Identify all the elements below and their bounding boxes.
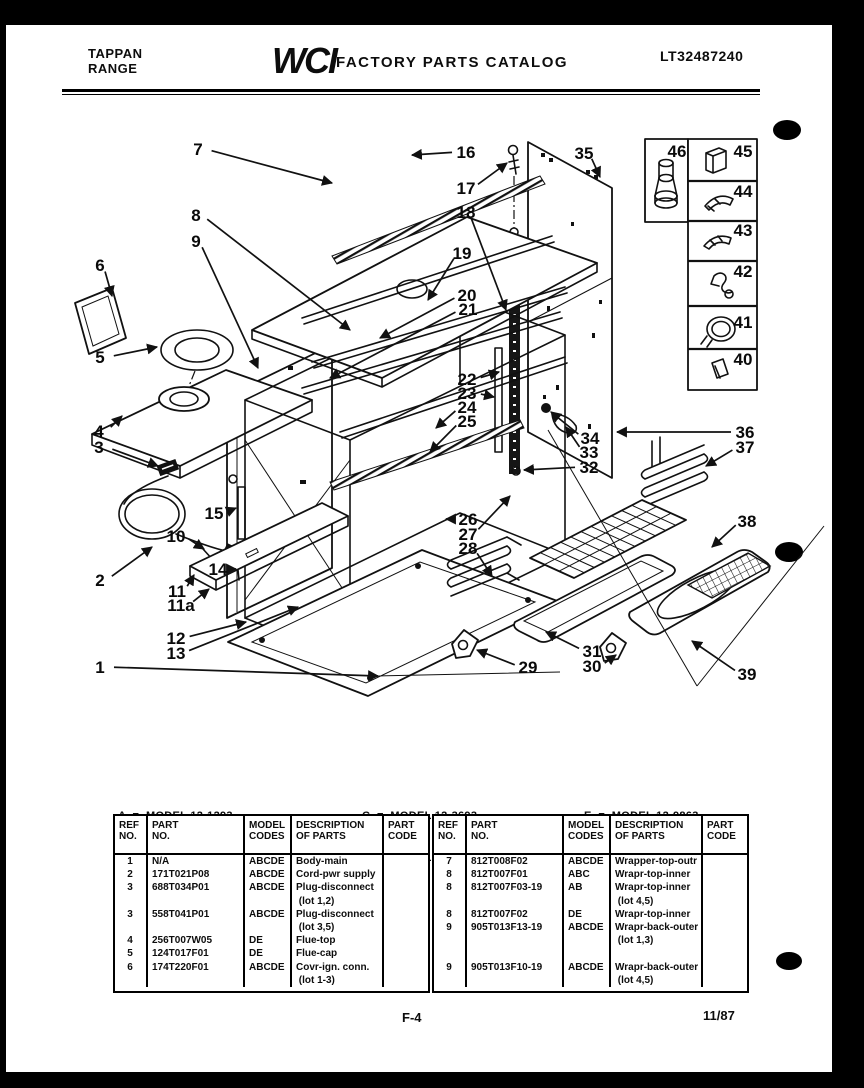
callout-21: 21 bbox=[459, 300, 478, 319]
callout-14: 14 bbox=[209, 560, 228, 579]
callout-8: 8 bbox=[191, 206, 200, 225]
part-number-cell: 256T007W05 bbox=[148, 934, 245, 947]
part-code-cell bbox=[703, 855, 747, 868]
callout-13: 13 bbox=[167, 644, 186, 663]
leader-line-17 bbox=[478, 163, 507, 184]
flue-cap-ring bbox=[161, 330, 233, 370]
ref-cell: 7 bbox=[434, 855, 467, 868]
description-cell: Flue-top bbox=[292, 934, 384, 947]
callout-11a: 11a bbox=[167, 596, 195, 615]
catalog-page: TAPPAN RANGE WCI FACTORY PARTS CATALOG L… bbox=[0, 0, 864, 1088]
model-codes-cell bbox=[245, 921, 292, 934]
model-codes-cell: ABCDE bbox=[245, 961, 292, 974]
column-header: PART NO. bbox=[148, 816, 245, 853]
part-code-cell bbox=[703, 868, 747, 881]
leader-line-2 bbox=[112, 547, 152, 576]
bracket-6 bbox=[75, 288, 126, 354]
column-header: DESCRIPTION OF PARTS bbox=[611, 816, 703, 853]
model-codes-cell bbox=[564, 934, 611, 947]
part-code-cell bbox=[703, 947, 747, 960]
model-codes-cell: ABCDE bbox=[245, 908, 292, 921]
ref-cell: 9 bbox=[434, 921, 467, 934]
description-cell: Wrapper-top-outr bbox=[611, 855, 703, 868]
part-number-cell bbox=[467, 934, 564, 947]
callout-37: 37 bbox=[736, 438, 755, 457]
leader-line-12 bbox=[190, 622, 246, 636]
model-codes-cell bbox=[245, 974, 292, 987]
ref-cell bbox=[115, 895, 148, 908]
model-codes-cell bbox=[564, 947, 611, 960]
callout-5: 5 bbox=[95, 348, 104, 367]
description-cell: Wrapr-top-inner bbox=[611, 908, 703, 921]
part-code-cell bbox=[384, 895, 428, 908]
part-number-cell: 124T017F01 bbox=[148, 947, 245, 960]
ref-cell: 8 bbox=[434, 908, 467, 921]
leader-line-7 bbox=[212, 151, 332, 183]
grommet-34 bbox=[541, 403, 551, 413]
model-codes-cell: ABC bbox=[564, 868, 611, 881]
model-codes-cell: DE bbox=[564, 908, 611, 921]
callout-42: 42 bbox=[734, 262, 753, 281]
leader-line-16 bbox=[412, 152, 452, 155]
leader-line-38 bbox=[712, 525, 736, 547]
ref-cell bbox=[115, 921, 148, 934]
model-codes-cell bbox=[564, 974, 611, 987]
description-cell: Cord-pwr supply bbox=[292, 868, 384, 881]
leader-line-5 bbox=[114, 347, 157, 356]
callout-2: 2 bbox=[95, 571, 104, 590]
leader-line-23 bbox=[481, 394, 494, 397]
part-number-cell bbox=[467, 974, 564, 987]
leader-line-11a bbox=[193, 589, 209, 602]
leader-line-9 bbox=[202, 247, 258, 368]
description-cell: Covr-ign. conn. bbox=[292, 961, 384, 974]
callout-6: 6 bbox=[95, 256, 104, 275]
callout-43: 43 bbox=[734, 221, 753, 240]
callout-32: 32 bbox=[580, 458, 599, 477]
model-codes-cell: DE bbox=[245, 934, 292, 947]
part-number-cell: 171T021P08 bbox=[148, 868, 245, 881]
callout-1: 1 bbox=[95, 658, 104, 677]
part-code-cell bbox=[703, 895, 747, 908]
description-cell: Body-main bbox=[292, 855, 384, 868]
description-cell: Flue-cap bbox=[292, 947, 384, 960]
column-header: PART NO. bbox=[467, 816, 564, 853]
ref-cell bbox=[115, 974, 148, 987]
ref-cell: 5 bbox=[115, 947, 148, 960]
part-code-cell bbox=[384, 934, 428, 947]
part-number-cell: 812T007F01 bbox=[467, 868, 564, 881]
callout-28: 28 bbox=[459, 539, 478, 558]
ref-cell: 2 bbox=[115, 868, 148, 881]
model-codes-cell: ABCDE bbox=[245, 868, 292, 881]
callout-9: 9 bbox=[191, 232, 200, 251]
part-code-cell bbox=[384, 921, 428, 934]
callout-3: 3 bbox=[94, 438, 103, 457]
part-code-cell bbox=[703, 974, 747, 987]
ref-cell bbox=[434, 974, 467, 987]
callout-16: 16 bbox=[457, 143, 476, 162]
model-codes-cell: AB bbox=[564, 881, 611, 894]
ref-cell: 3 bbox=[115, 881, 148, 894]
column-header: REF NO. bbox=[115, 816, 148, 853]
part-code-cell bbox=[384, 947, 428, 960]
page-number: F-4 bbox=[402, 1010, 422, 1025]
column-header: MODEL CODES bbox=[245, 816, 292, 853]
part-code-cell bbox=[384, 868, 428, 881]
leader-line-8 bbox=[207, 219, 350, 330]
callout-45: 45 bbox=[734, 142, 753, 161]
part-number-cell: 905T013F10-19 bbox=[467, 961, 564, 974]
description-cell: (lot 3,5) bbox=[292, 921, 384, 934]
ref-cell bbox=[434, 895, 467, 908]
callout-19: 19 bbox=[453, 244, 472, 263]
part-number-cell bbox=[148, 895, 245, 908]
leader-line-32 bbox=[524, 467, 575, 470]
description-cell: Wrapr-back-outer bbox=[611, 921, 703, 934]
parts-table-right: REF NO.PART NO.MODEL CODESDESCRIPTION OF… bbox=[432, 814, 749, 993]
part-code-cell bbox=[703, 881, 747, 894]
description-cell: (lot 4,5) bbox=[611, 895, 703, 908]
description-cell bbox=[611, 947, 703, 960]
model-codes-cell: ABCDE bbox=[564, 855, 611, 868]
ref-cell: 4 bbox=[115, 934, 148, 947]
part-number-cell: N/A bbox=[148, 855, 245, 868]
description-cell: (lot 1-3) bbox=[292, 974, 384, 987]
part-number-cell bbox=[467, 947, 564, 960]
leader-line-29 bbox=[477, 650, 515, 665]
callout-18: 18 bbox=[457, 203, 476, 222]
description-cell: Plug-disconnect bbox=[292, 908, 384, 921]
description-cell: Plug-disconnect bbox=[292, 881, 384, 894]
part-code-cell bbox=[384, 855, 428, 868]
part-number-cell: 558T041P01 bbox=[148, 908, 245, 921]
ref-cell bbox=[434, 947, 467, 960]
screw-icon bbox=[509, 146, 520, 175]
part-number-cell: 812T008F02 bbox=[467, 855, 564, 868]
column-header: DESCRIPTION OF PARTS bbox=[292, 816, 384, 853]
part-code-cell bbox=[384, 961, 428, 974]
description-cell: Wrapr-back-outer bbox=[611, 961, 703, 974]
callout-7: 7 bbox=[193, 140, 202, 159]
description-cell: Wrapr-top-inner bbox=[611, 868, 703, 881]
revision-date: 11/87 bbox=[703, 1008, 735, 1023]
callout-38: 38 bbox=[738, 512, 757, 531]
heating-element-right bbox=[642, 437, 708, 506]
trim-band-25 bbox=[330, 420, 524, 490]
model-codes-cell: ABCDE bbox=[245, 855, 292, 868]
description-cell: (lot 1,3) bbox=[611, 934, 703, 947]
column-header: PART CODE bbox=[703, 816, 747, 853]
callout-10: 10 bbox=[167, 527, 186, 546]
part-code-cell bbox=[384, 881, 428, 894]
model-codes-cell: ABCDE bbox=[245, 881, 292, 894]
model-codes-cell: DE bbox=[245, 947, 292, 960]
callout-25: 25 bbox=[458, 412, 477, 431]
model-codes-cell: ABCDE bbox=[564, 921, 611, 934]
model-codes-cell: ABCDE bbox=[564, 961, 611, 974]
ref-cell: 8 bbox=[434, 881, 467, 894]
ref-cell: 8 bbox=[434, 868, 467, 881]
column-header: REF NO. bbox=[434, 816, 467, 853]
ref-cell: 3 bbox=[115, 908, 148, 921]
column-header: PART CODE bbox=[384, 816, 428, 853]
leader-line-24 bbox=[436, 411, 455, 428]
part-number-cell bbox=[148, 974, 245, 987]
leader-line-37 bbox=[706, 450, 732, 466]
leader-line-27 bbox=[478, 496, 510, 529]
callout-40: 40 bbox=[734, 350, 753, 369]
ref-cell: 9 bbox=[434, 961, 467, 974]
callout-39: 39 bbox=[738, 665, 757, 684]
model-codes-cell bbox=[564, 895, 611, 908]
callout-29: 29 bbox=[519, 658, 538, 677]
registration-marks bbox=[773, 120, 803, 970]
part-code-cell bbox=[703, 961, 747, 974]
callout-15: 15 bbox=[205, 504, 224, 523]
part-number-cell bbox=[467, 895, 564, 908]
part-number-cell: 905T013F13-19 bbox=[467, 921, 564, 934]
ref-cell: 1 bbox=[115, 855, 148, 868]
part-code-cell bbox=[703, 934, 747, 947]
callout-44: 44 bbox=[734, 182, 753, 201]
model-codes-cell bbox=[245, 895, 292, 908]
callout-30: 30 bbox=[583, 657, 602, 676]
part-number-cell: 812T007F02 bbox=[467, 908, 564, 921]
callout-41: 41 bbox=[734, 313, 753, 332]
part-code-cell bbox=[703, 908, 747, 921]
description-cell: (lot 4,5) bbox=[611, 974, 703, 987]
part-number-cell: 688T034P01 bbox=[148, 881, 245, 894]
column-header: MODEL CODES bbox=[564, 816, 611, 853]
description-cell: (lot 1,2) bbox=[292, 895, 384, 908]
part-number-cell bbox=[148, 921, 245, 934]
parts-table-left: REF NO.PART NO.MODEL CODESDESCRIPTION OF… bbox=[113, 814, 430, 993]
part-number-cell: 174T220F01 bbox=[148, 961, 245, 974]
part-number-cell: 812T007F03-19 bbox=[467, 881, 564, 894]
callout-35: 35 bbox=[575, 144, 594, 163]
part-code-cell bbox=[703, 921, 747, 934]
description-cell: Wrapr-top-inner bbox=[611, 881, 703, 894]
callout-17: 17 bbox=[457, 179, 476, 198]
ref-cell bbox=[434, 934, 467, 947]
part-code-cell bbox=[384, 908, 428, 921]
ref-cell: 6 bbox=[115, 961, 148, 974]
part-code-cell bbox=[384, 974, 428, 987]
callout-46: 46 bbox=[668, 142, 687, 161]
